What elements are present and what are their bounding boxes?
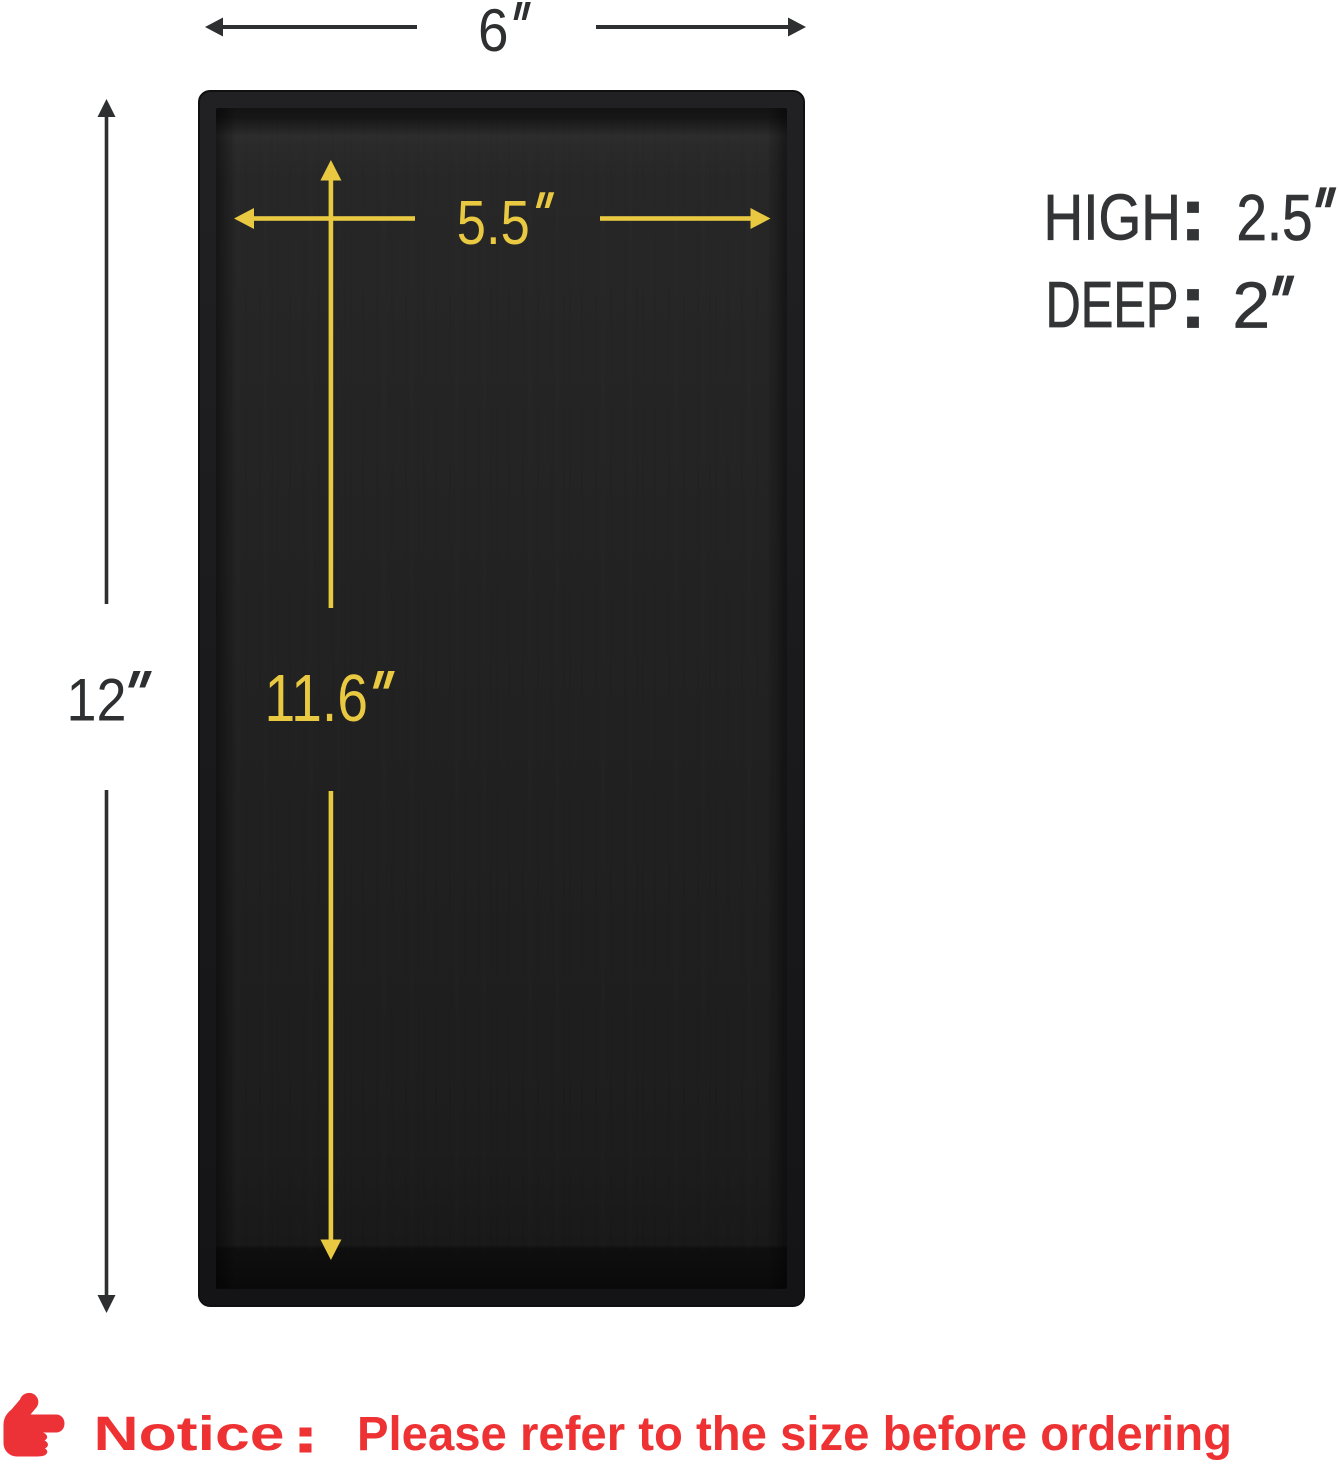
svg-text:5.5: 5.5 (457, 189, 530, 258)
svg-text:HIGH: HIGH (1044, 181, 1182, 254)
svg-text:2.5: 2.5 (1237, 181, 1313, 254)
svg-text:DEEP: DEEP (1046, 268, 1179, 341)
svg-text:12: 12 (67, 667, 127, 734)
svg-text:Notice: Notice (94, 1408, 285, 1461)
svg-text:2: 2 (1233, 269, 1271, 342)
svg-text:Please refer to the size befor: Please refer to the size before ordering (357, 1408, 1232, 1461)
svg-text:6: 6 (478, 0, 509, 64)
svg-text:11.6: 11.6 (265, 661, 369, 736)
